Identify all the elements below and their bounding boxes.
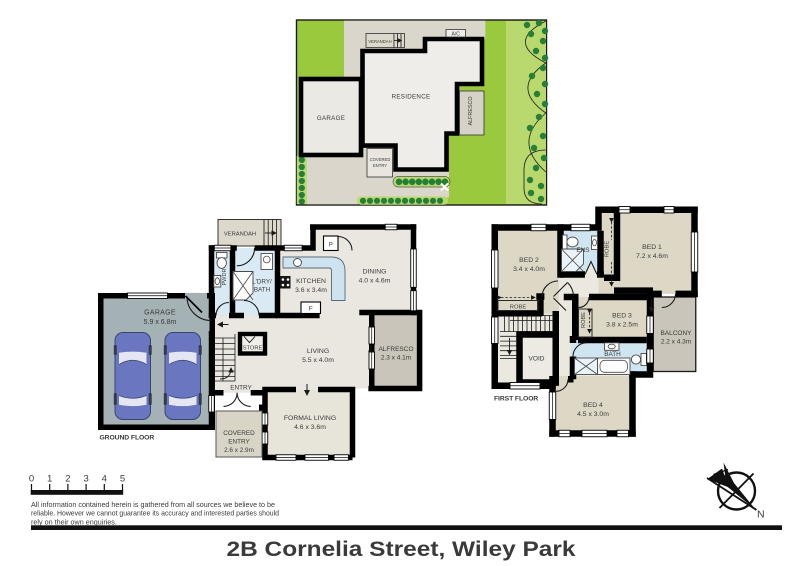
svg-text:VERANDAH: VERANDAH bbox=[368, 39, 391, 44]
svg-text:BED 2: BED 2 bbox=[519, 257, 539, 264]
svg-text:3.6 x 3.4m: 3.6 x 3.4m bbox=[295, 287, 327, 294]
svg-text:2.3 x 4.1m: 2.3 x 4.1m bbox=[381, 355, 411, 362]
svg-text:N: N bbox=[757, 509, 765, 521]
svg-text:5: 5 bbox=[120, 474, 125, 485]
svg-text:4: 4 bbox=[102, 474, 107, 485]
svg-text:RESIDENCE: RESIDENCE bbox=[392, 94, 431, 101]
svg-text:2B Cornelia Street, Wiley Park: 2B Cornelia Street, Wiley Park bbox=[227, 537, 576, 561]
svg-text:A/C: A/C bbox=[452, 31, 461, 37]
svg-text:4.5 x 3.0m: 4.5 x 3.0m bbox=[577, 411, 609, 418]
svg-text:ENS: ENS bbox=[576, 247, 589, 254]
svg-text:BATH: BATH bbox=[254, 287, 271, 294]
svg-text:VERANDAH: VERANDAH bbox=[224, 232, 256, 238]
svg-text:COVERED: COVERED bbox=[223, 430, 255, 437]
svg-text:PWDR: PWDR bbox=[222, 268, 228, 285]
svg-text:ALFRESCO: ALFRESCO bbox=[468, 96, 474, 125]
svg-text:GARAGE: GARAGE bbox=[144, 310, 176, 317]
svg-text:3.8 x 2.5m: 3.8 x 2.5m bbox=[606, 322, 638, 329]
svg-text:FIRST FLOOR: FIRST FLOOR bbox=[494, 396, 538, 403]
svg-text:L'DRY/: L'DRY/ bbox=[252, 279, 272, 286]
svg-text:2.6 x 2.9m: 2.6 x 2.9m bbox=[224, 447, 254, 454]
svg-text:4.6 x 3.6m: 4.6 x 3.6m bbox=[294, 424, 326, 431]
svg-text:2.2 x 4.3m: 2.2 x 4.3m bbox=[661, 339, 691, 346]
svg-text:ROBE: ROBE bbox=[581, 312, 587, 328]
svg-text:5.9 x 6.8m: 5.9 x 6.8m bbox=[144, 319, 177, 326]
svg-text:BED 4: BED 4 bbox=[583, 402, 603, 409]
svg-text:P: P bbox=[329, 243, 333, 249]
svg-text:ROBE: ROBE bbox=[605, 241, 611, 258]
svg-text:STORE: STORE bbox=[243, 345, 263, 351]
svg-text:ENTRY: ENTRY bbox=[228, 439, 250, 446]
svg-text:rely on their own enquiries.: rely on their own enquiries. bbox=[31, 517, 117, 526]
svg-text:7.2 x 4.6m: 7.2 x 4.6m bbox=[636, 253, 668, 260]
svg-text:3: 3 bbox=[83, 474, 88, 485]
svg-text:ENTRY: ENTRY bbox=[373, 163, 387, 168]
svg-text:COVERED: COVERED bbox=[370, 157, 391, 162]
svg-text:GARAGE: GARAGE bbox=[317, 115, 345, 122]
svg-text:FORMAL LIVING: FORMAL LIVING bbox=[284, 415, 336, 422]
svg-text:ROBE: ROBE bbox=[510, 304, 527, 310]
svg-text:All information contained here: All information contained herein is gath… bbox=[31, 500, 275, 509]
svg-text:BATH: BATH bbox=[604, 351, 621, 358]
svg-text:GROUND FLOOR: GROUND FLOOR bbox=[100, 435, 155, 442]
svg-text:BED 1: BED 1 bbox=[642, 244, 662, 251]
svg-text:0: 0 bbox=[29, 474, 34, 485]
svg-text:ENTRY: ENTRY bbox=[230, 385, 252, 392]
svg-text:BALCONY: BALCONY bbox=[660, 330, 692, 337]
svg-text:5.5 x 4.0m: 5.5 x 4.0m bbox=[302, 357, 334, 364]
svg-text:F: F bbox=[309, 306, 313, 313]
svg-text:reliable. However we cannot gu: reliable. However we cannot guarantee it… bbox=[31, 509, 279, 518]
svg-text:LIVING: LIVING bbox=[307, 348, 329, 355]
svg-text:ALFRESCO: ALFRESCO bbox=[378, 346, 413, 353]
svg-text:1: 1 bbox=[47, 474, 52, 485]
svg-text:VOID: VOID bbox=[529, 356, 545, 363]
svg-text:KITCHEN: KITCHEN bbox=[296, 278, 326, 285]
svg-text:4.0 x 4.6m: 4.0 x 4.6m bbox=[359, 278, 391, 285]
svg-text:3.4 x 4.0m: 3.4 x 4.0m bbox=[513, 266, 545, 273]
svg-text:BED 3: BED 3 bbox=[612, 313, 632, 320]
svg-text:DINING: DINING bbox=[363, 269, 387, 276]
svg-text:2: 2 bbox=[65, 474, 70, 485]
